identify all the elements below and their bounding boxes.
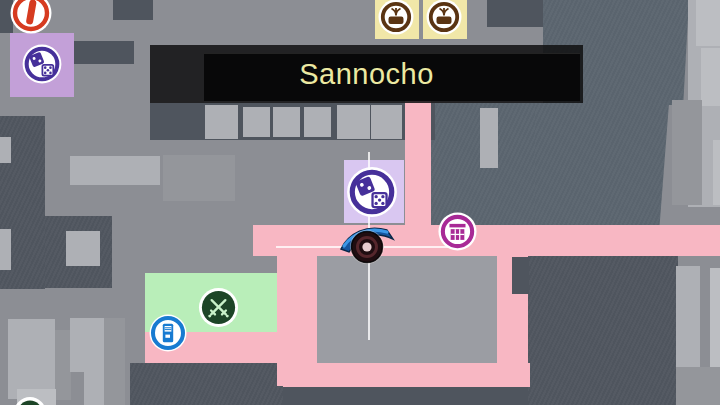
weapon-shop-icon[interactable] bbox=[197, 286, 240, 329]
building-block bbox=[528, 255, 678, 405]
gambling-dice-icon[interactable] bbox=[21, 43, 63, 85]
building-block bbox=[304, 107, 331, 137]
player-marker bbox=[335, 221, 399, 273]
restaurant-icon[interactable] bbox=[377, 0, 415, 36]
building-block bbox=[487, 0, 543, 27]
building-block bbox=[710, 268, 720, 368]
road-segment bbox=[405, 100, 431, 226]
game-map-canvas: Sannocho bbox=[0, 0, 720, 405]
building-block bbox=[66, 231, 100, 266]
gambling-dice-icon[interactable] bbox=[345, 165, 399, 219]
building-block bbox=[480, 108, 498, 168]
building-block bbox=[701, 48, 720, 106]
building-block bbox=[535, 103, 669, 225]
building-block bbox=[104, 318, 125, 405]
building-block bbox=[371, 105, 402, 139]
building-block bbox=[0, 137, 11, 163]
building-block bbox=[337, 105, 370, 139]
building-block bbox=[283, 386, 530, 405]
pharmacy-icon[interactable] bbox=[437, 211, 478, 252]
building-block bbox=[676, 367, 720, 405]
restaurant-icon[interactable] bbox=[425, 0, 463, 36]
building-block bbox=[130, 363, 288, 405]
building-block bbox=[163, 155, 235, 201]
red-pepper-icon[interactable] bbox=[9, 0, 53, 35]
building-block bbox=[273, 107, 300, 137]
road-segment bbox=[253, 225, 720, 256]
building-block bbox=[205, 105, 238, 139]
building-block bbox=[243, 107, 270, 137]
building-block bbox=[70, 156, 160, 185]
weapon-shop-icon[interactable] bbox=[13, 396, 47, 405]
road-segment bbox=[283, 363, 530, 387]
building-block bbox=[113, 0, 153, 20]
district-banner: Sannocho bbox=[150, 45, 583, 103]
building-block bbox=[696, 0, 720, 46]
building-block bbox=[672, 100, 702, 205]
district-name: Sannocho bbox=[299, 58, 434, 91]
building-block bbox=[512, 257, 529, 294]
vending-machine-icon[interactable] bbox=[148, 313, 188, 353]
building-block bbox=[55, 330, 71, 400]
building-block bbox=[8, 319, 55, 399]
building-block bbox=[0, 229, 11, 270]
building-block bbox=[713, 140, 720, 205]
